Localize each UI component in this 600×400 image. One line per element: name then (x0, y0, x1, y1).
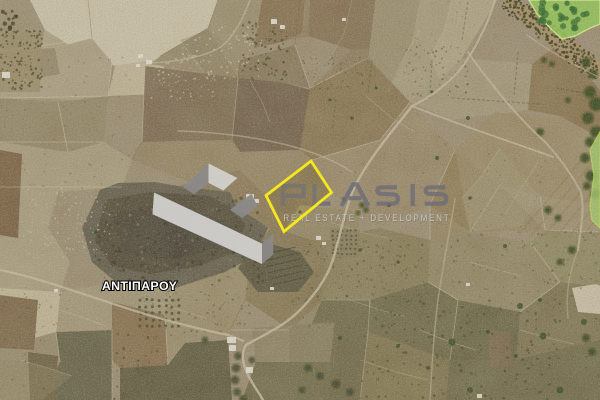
svg-text:REAL ESTATE + DEVELOPMENT: REAL ESTATE + DEVELOPMENT (284, 213, 451, 223)
svg-text:ΑΝΤΙΠΑΡΟΥ: ΑΝΤΙΠΑΡΟΥ (102, 279, 178, 293)
